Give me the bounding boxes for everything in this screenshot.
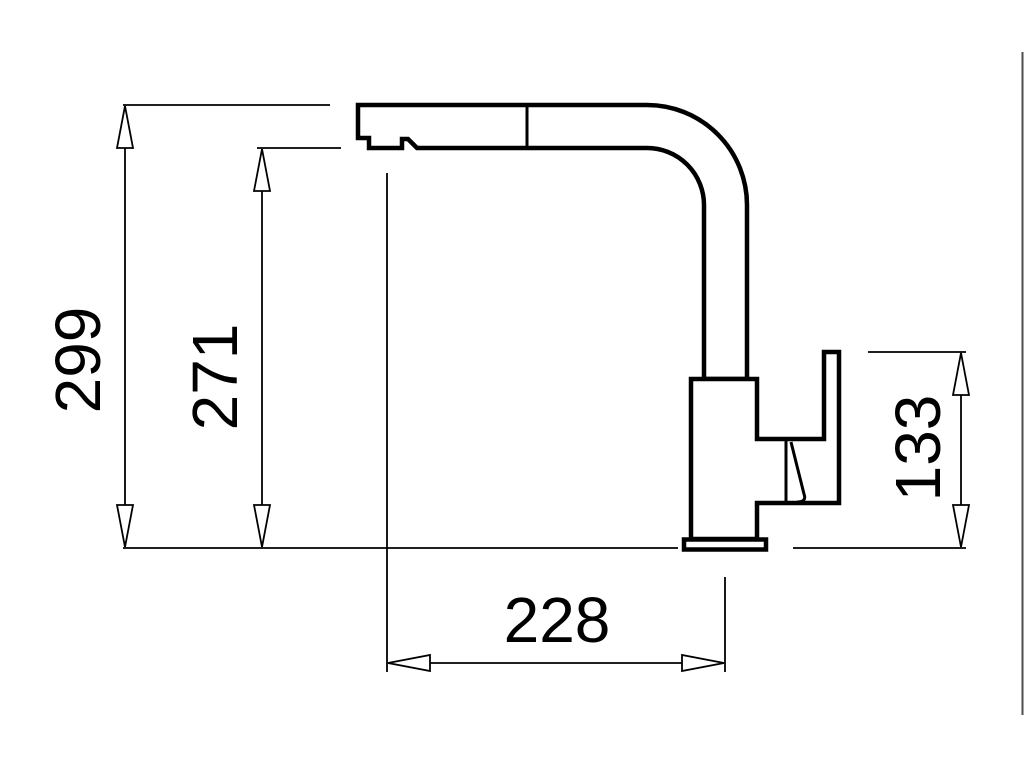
arrowhead-right-icon [682,655,724,671]
dimension-228: 228 [387,173,725,672]
dimension-label-228: 228 [504,584,611,656]
arrowhead-up-icon [254,149,270,191]
arrowhead-up-icon [117,106,133,148]
technical-drawing-page: 299 271 133 228 [0,0,1024,768]
dimension-label-299: 299 [42,307,114,414]
faucet-dimension-drawing: 299 271 133 228 [0,0,1024,768]
arrowhead-down-icon [117,505,133,547]
dimension-label-271: 271 [179,324,251,431]
dimension-271: 271 [179,148,341,547]
faucet-outline [358,105,839,550]
arrowhead-down-icon [953,505,969,547]
dimension-label-133: 133 [882,395,954,502]
base-plate [684,540,766,550]
body-and-handle-outline [691,352,839,539]
arrowhead-left-icon [388,655,430,671]
arrowhead-up-icon [953,353,969,395]
dimension-133: 133 [868,352,969,547]
arrowhead-down-icon [254,505,270,547]
spout-and-neck-outline [358,105,747,379]
